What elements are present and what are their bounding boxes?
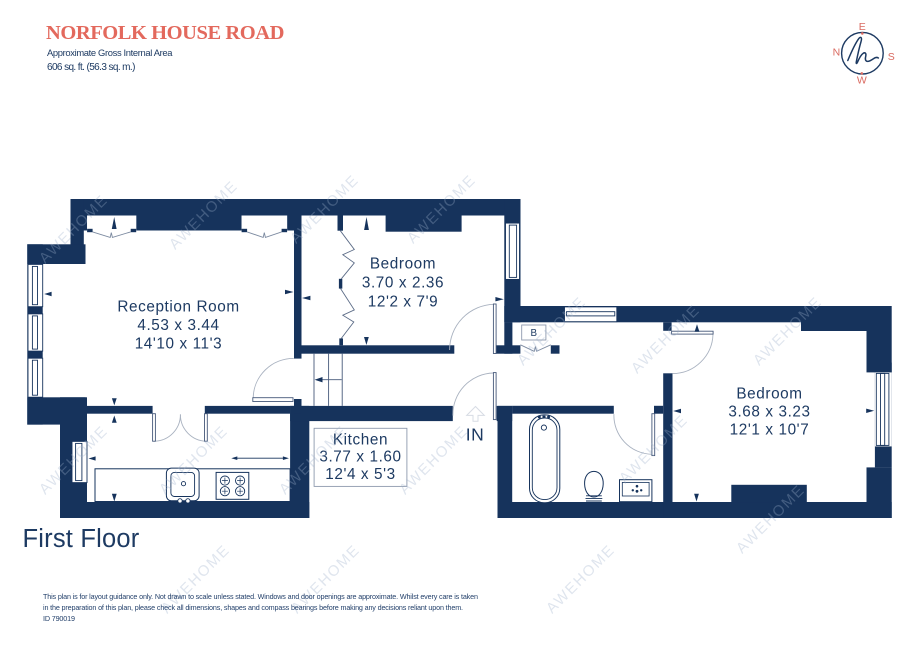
svg-text:Bedroom: Bedroom xyxy=(370,255,436,272)
svg-text:Reception Room: Reception Room xyxy=(117,299,239,316)
svg-text:3.70 x 2.36: 3.70 x 2.36 xyxy=(362,274,444,291)
svg-text:12'4 x 5'3: 12'4 x 5'3 xyxy=(325,466,396,483)
svg-text:Bedroom: Bedroom xyxy=(736,386,802,403)
svg-text:3.68 x 3.23: 3.68 x 3.23 xyxy=(728,404,810,421)
svg-text:14'10 x 11'3: 14'10 x 11'3 xyxy=(135,336,223,353)
svg-text:12'2 x 7'9: 12'2 x 7'9 xyxy=(368,293,439,310)
svg-text:4.53 x 3.44: 4.53 x 3.44 xyxy=(137,317,219,334)
svg-text:12'1 x 10'7: 12'1 x 10'7 xyxy=(730,422,810,439)
